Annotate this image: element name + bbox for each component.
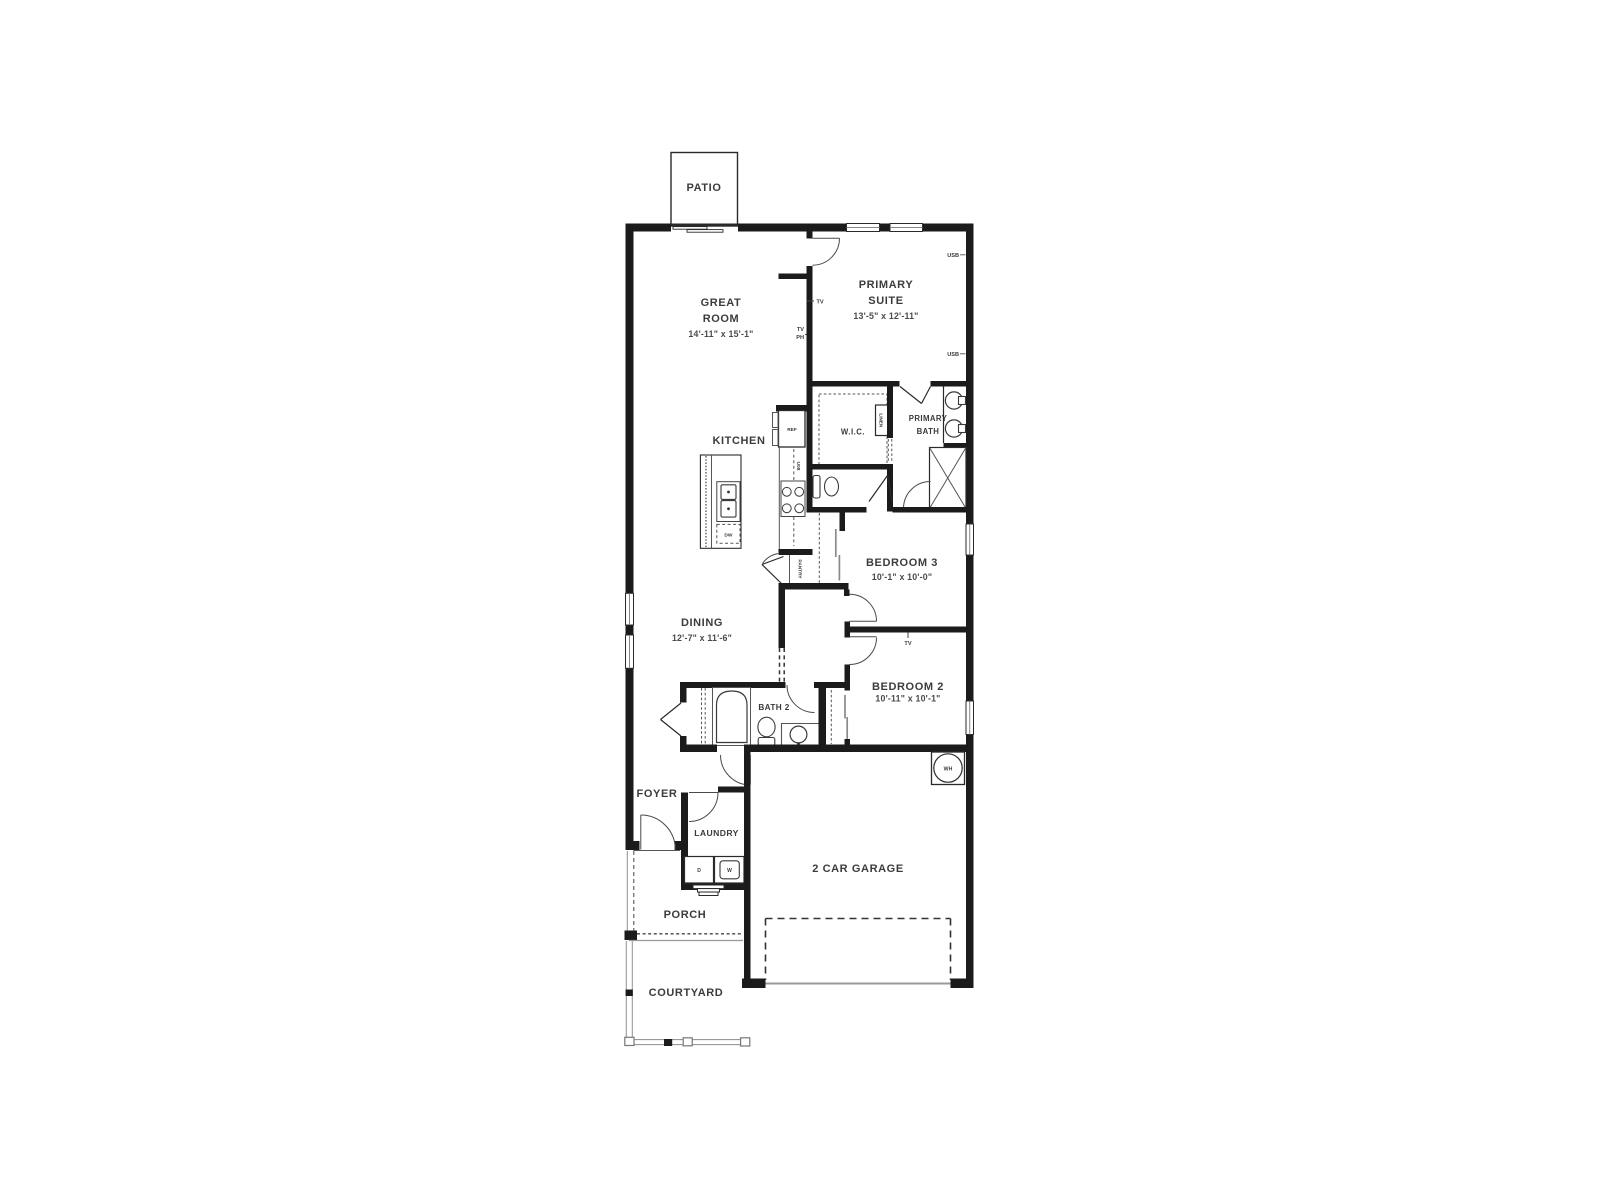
svg-text:14'-11" x 15'-1": 14'-11" x 15'-1" [688, 329, 753, 339]
svg-text:12'-7" x 11'-6": 12'-7" x 11'-6" [672, 633, 732, 643]
svg-text:LAUNDRY: LAUNDRY [694, 828, 739, 838]
svg-text:USB: USB [947, 253, 959, 259]
svg-text:TV: TV [797, 327, 804, 333]
svg-text:BATH: BATH [917, 427, 940, 436]
svg-text:13'-5" x 12'-11": 13'-5" x 12'-11" [853, 311, 918, 321]
svg-text:W: W [727, 868, 732, 874]
svg-text:PRIMARY: PRIMARY [909, 414, 948, 423]
svg-text:FOYER: FOYER [637, 788, 678, 800]
svg-text:LINEN: LINEN [879, 413, 884, 427]
svg-text:DINING: DINING [681, 617, 723, 629]
svg-text:KITCHEN: KITCHEN [712, 435, 765, 447]
svg-text:BEDROOM 2: BEDROOM 2 [872, 681, 944, 693]
svg-text:D: D [697, 868, 701, 874]
svg-text:BATH 2: BATH 2 [758, 703, 789, 712]
svg-text:GREAT: GREAT [701, 297, 742, 309]
svg-text:TV: TV [817, 300, 824, 306]
svg-text:2 CAR GARAGE: 2 CAR GARAGE [812, 863, 904, 875]
svg-text:PORCH: PORCH [664, 909, 707, 921]
svg-text:DW: DW [724, 533, 732, 539]
svg-text:U08: U08 [795, 462, 801, 471]
svg-text:W.I.C.: W.I.C. [841, 428, 865, 437]
svg-text:PH: PH [796, 335, 804, 341]
svg-text:10'-11" x 10'-1": 10'-11" x 10'-1" [875, 694, 940, 704]
svg-text:10'-1" x 10'-0": 10'-1" x 10'-0" [872, 572, 933, 582]
svg-text:REF: REF [787, 427, 797, 433]
svg-text:BEDROOM 3: BEDROOM 3 [866, 557, 938, 569]
svg-text:PATIO: PATIO [687, 182, 722, 194]
svg-text:COURTYARD: COURTYARD [649, 987, 724, 999]
svg-text:PRIMARY: PRIMARY [859, 279, 914, 291]
svg-text:SUITE: SUITE [868, 295, 903, 307]
svg-text:ROOM: ROOM [703, 313, 740, 325]
svg-text:PANTRY: PANTRY [797, 559, 803, 579]
svg-text:USB: USB [947, 352, 959, 358]
svg-text:WH: WH [944, 767, 953, 773]
svg-text:TV: TV [904, 641, 911, 647]
